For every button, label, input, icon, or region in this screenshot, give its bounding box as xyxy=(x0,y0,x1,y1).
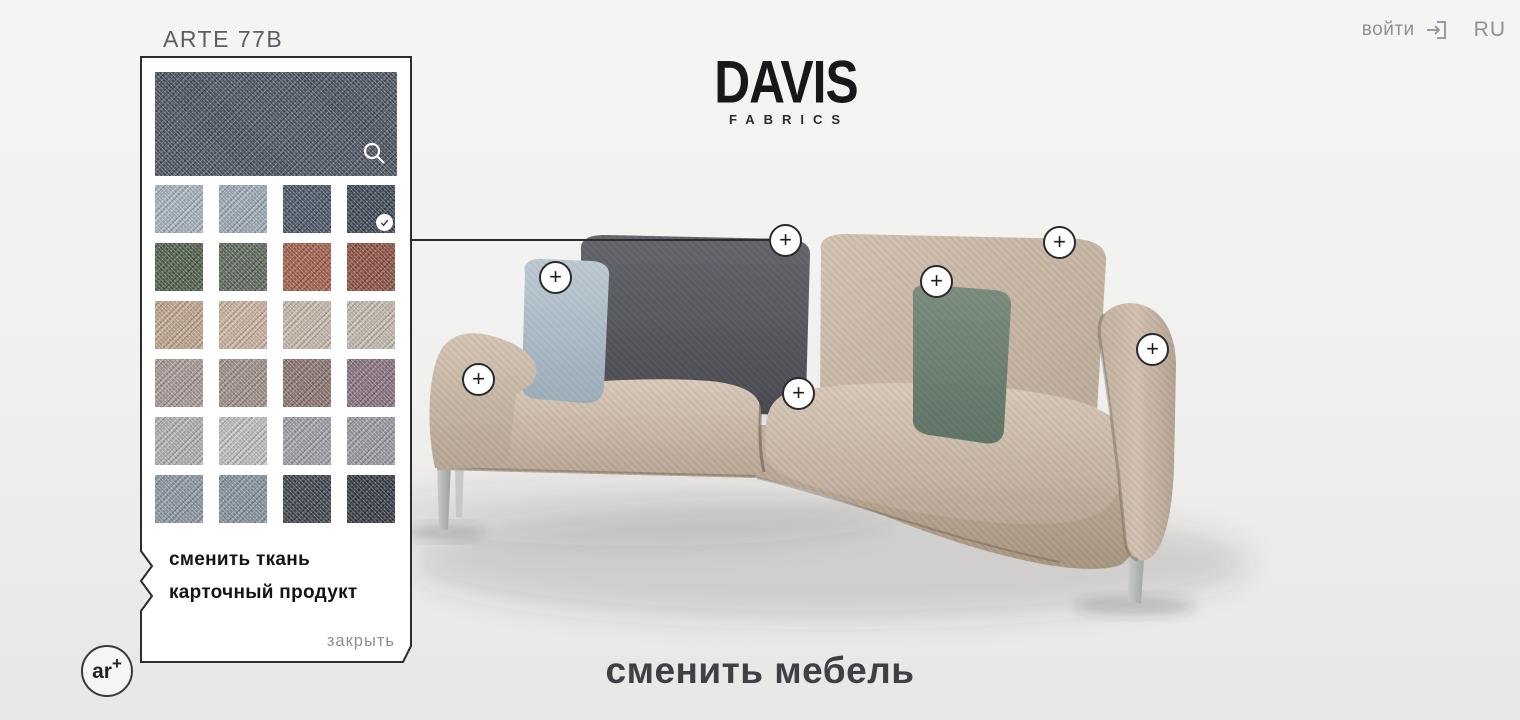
hotspot-back-cushion-left[interactable]: + xyxy=(769,224,802,257)
fabric-swatch[interactable] xyxy=(219,243,267,291)
fabric-swatch[interactable] xyxy=(283,243,331,291)
fabric-swatch[interactable] xyxy=(155,475,203,523)
login-label: войти xyxy=(1362,19,1415,41)
swatch-grid xyxy=(155,185,395,523)
fabric-swatch[interactable] xyxy=(155,359,203,407)
fabric-swatch[interactable] xyxy=(283,185,331,233)
fabric-swatch[interactable] xyxy=(283,417,331,465)
ar-mode-button[interactable]: ar + xyxy=(81,645,133,697)
hotspot-back-cushion-right[interactable]: + xyxy=(1043,226,1076,259)
fabric-swatch[interactable] xyxy=(155,417,203,465)
fabric-swatch[interactable] xyxy=(219,301,267,349)
magnifier-icon[interactable] xyxy=(361,140,387,166)
hotspot-pillow-left[interactable]: + xyxy=(539,261,572,294)
fabric-preview[interactable] xyxy=(155,72,397,176)
fabric-swatch[interactable] xyxy=(283,301,331,349)
fabric-swatch[interactable] xyxy=(155,185,203,233)
login-button[interactable]: войти xyxy=(1362,18,1448,42)
hotspot-seat-cushion[interactable]: + xyxy=(782,377,815,410)
fabric-swatch[interactable] xyxy=(219,359,267,407)
fabric-panel: сменить ткань карточный продукт закрыть xyxy=(141,57,411,661)
fabric-collection-title: ARTE 77B xyxy=(163,26,283,53)
brand-name: DAVIS xyxy=(676,52,897,112)
fabric-swatch[interactable] xyxy=(347,301,395,349)
fabric-swatch[interactable] xyxy=(219,475,267,523)
fabric-swatch[interactable] xyxy=(347,359,395,407)
hotspot-armrest-right[interactable]: + xyxy=(1136,333,1169,366)
change-fabric-link[interactable]: сменить ткань xyxy=(169,549,358,571)
fabric-swatch[interactable] xyxy=(347,185,395,233)
fabric-swatch[interactable] xyxy=(219,185,267,233)
brand-logo: DAVIS FABRICS xyxy=(666,52,906,127)
fabric-swatch[interactable] xyxy=(219,417,267,465)
fabric-swatch[interactable] xyxy=(347,417,395,465)
fabric-swatch[interactable] xyxy=(155,243,203,291)
ar-button-plus: + xyxy=(112,655,122,672)
fabric-swatch[interactable] xyxy=(155,301,203,349)
fabric-swatch[interactable] xyxy=(347,475,395,523)
language-selector[interactable]: RU xyxy=(1474,18,1506,42)
close-panel-link[interactable]: закрыть xyxy=(327,632,395,651)
fabric-swatch[interactable] xyxy=(283,475,331,523)
login-icon xyxy=(1424,18,1448,42)
hotspot-armrest-left[interactable]: + xyxy=(462,363,495,396)
change-furniture-button[interactable]: сменить мебель xyxy=(0,650,1520,692)
fabric-swatch[interactable] xyxy=(347,243,395,291)
ar-button-text: ar xyxy=(92,661,112,682)
hotspot-pillow-right[interactable]: + xyxy=(920,265,953,298)
selected-check-icon xyxy=(376,214,393,231)
fabric-swatch[interactable] xyxy=(283,359,331,407)
product-card-link[interactable]: карточный продукт xyxy=(169,582,358,604)
